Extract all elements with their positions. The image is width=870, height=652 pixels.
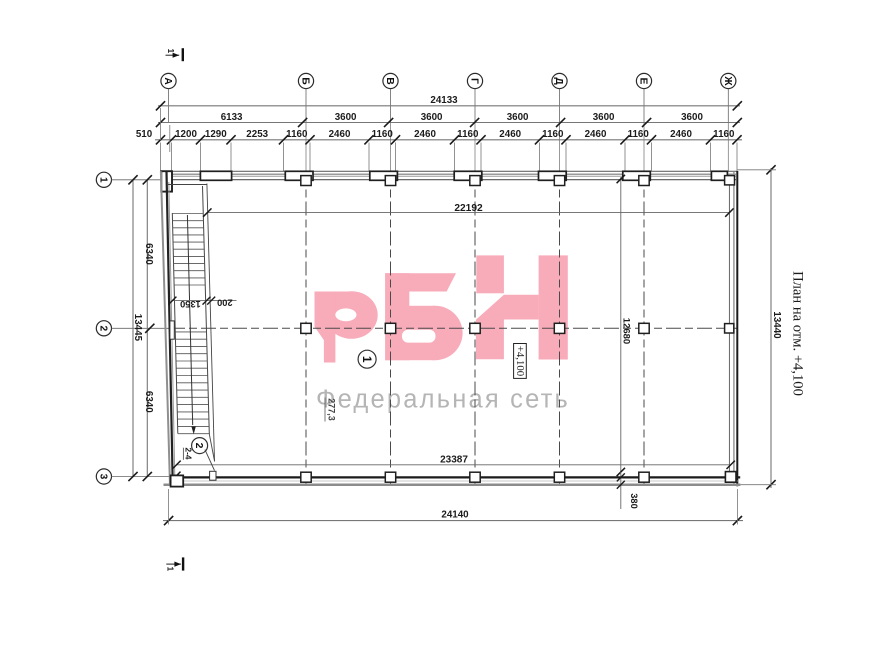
svg-text:Г: Г bbox=[469, 78, 480, 84]
svg-text:А: А bbox=[162, 77, 173, 85]
svg-text:2-4: 2-4 bbox=[183, 448, 193, 460]
svg-text:1200: 1200 bbox=[175, 129, 197, 140]
svg-text:1: 1 bbox=[166, 567, 175, 572]
svg-text:2: 2 bbox=[193, 443, 205, 449]
svg-text:3: 3 bbox=[98, 474, 109, 480]
svg-text:1: 1 bbox=[360, 356, 374, 363]
svg-text:План на отм. +4,100: План на отм. +4,100 bbox=[790, 271, 806, 396]
svg-text:2253: 2253 bbox=[246, 129, 268, 140]
svg-text:Федеральная сеть: Федеральная сеть bbox=[316, 386, 570, 414]
svg-text:2460: 2460 bbox=[670, 129, 692, 140]
svg-text:1290: 1290 bbox=[205, 129, 227, 140]
svg-text:200: 200 bbox=[217, 298, 233, 308]
svg-text:3600: 3600 bbox=[335, 112, 357, 123]
svg-text:380: 380 bbox=[629, 493, 639, 509]
svg-text:1350: 1350 bbox=[180, 299, 201, 309]
svg-text:2460: 2460 bbox=[414, 129, 436, 140]
svg-text:12680: 12680 bbox=[621, 318, 632, 344]
svg-text:13445: 13445 bbox=[132, 314, 143, 342]
svg-text:1160: 1160 bbox=[542, 129, 564, 140]
svg-text:1160: 1160 bbox=[372, 129, 394, 140]
svg-text:2460: 2460 bbox=[585, 129, 607, 140]
svg-text:+4,100: +4,100 bbox=[514, 346, 526, 376]
svg-text:В: В bbox=[384, 77, 395, 84]
svg-text:277,3: 277,3 bbox=[326, 398, 336, 421]
svg-text:23387: 23387 bbox=[440, 455, 468, 466]
svg-text:Е: Е bbox=[638, 78, 649, 85]
svg-text:1160: 1160 bbox=[713, 129, 735, 140]
svg-text:3600: 3600 bbox=[507, 112, 529, 123]
svg-text:Б: Б bbox=[300, 77, 311, 84]
svg-text:24140: 24140 bbox=[441, 510, 469, 521]
svg-text:1: 1 bbox=[166, 49, 175, 54]
svg-text:1: 1 bbox=[98, 177, 109, 183]
svg-text:1160: 1160 bbox=[286, 129, 308, 140]
svg-text:22192: 22192 bbox=[454, 203, 483, 214]
svg-text:2460: 2460 bbox=[499, 129, 521, 140]
svg-text:24133: 24133 bbox=[430, 95, 458, 106]
svg-text:2: 2 bbox=[98, 325, 109, 331]
svg-text:6340: 6340 bbox=[143, 243, 154, 265]
svg-text:3600: 3600 bbox=[593, 112, 615, 123]
svg-text:6340: 6340 bbox=[143, 391, 154, 413]
svg-text:510: 510 bbox=[136, 129, 153, 140]
svg-text:1160: 1160 bbox=[457, 129, 479, 140]
svg-text:2460: 2460 bbox=[329, 129, 351, 140]
svg-text:3600: 3600 bbox=[681, 112, 703, 123]
svg-text:6133: 6133 bbox=[221, 112, 243, 123]
svg-text:Д: Д bbox=[553, 77, 564, 85]
svg-text:13440: 13440 bbox=[771, 311, 782, 339]
svg-text:3600: 3600 bbox=[421, 112, 443, 123]
svg-text:Ж: Ж bbox=[722, 75, 733, 86]
svg-text:1160: 1160 bbox=[628, 129, 650, 140]
